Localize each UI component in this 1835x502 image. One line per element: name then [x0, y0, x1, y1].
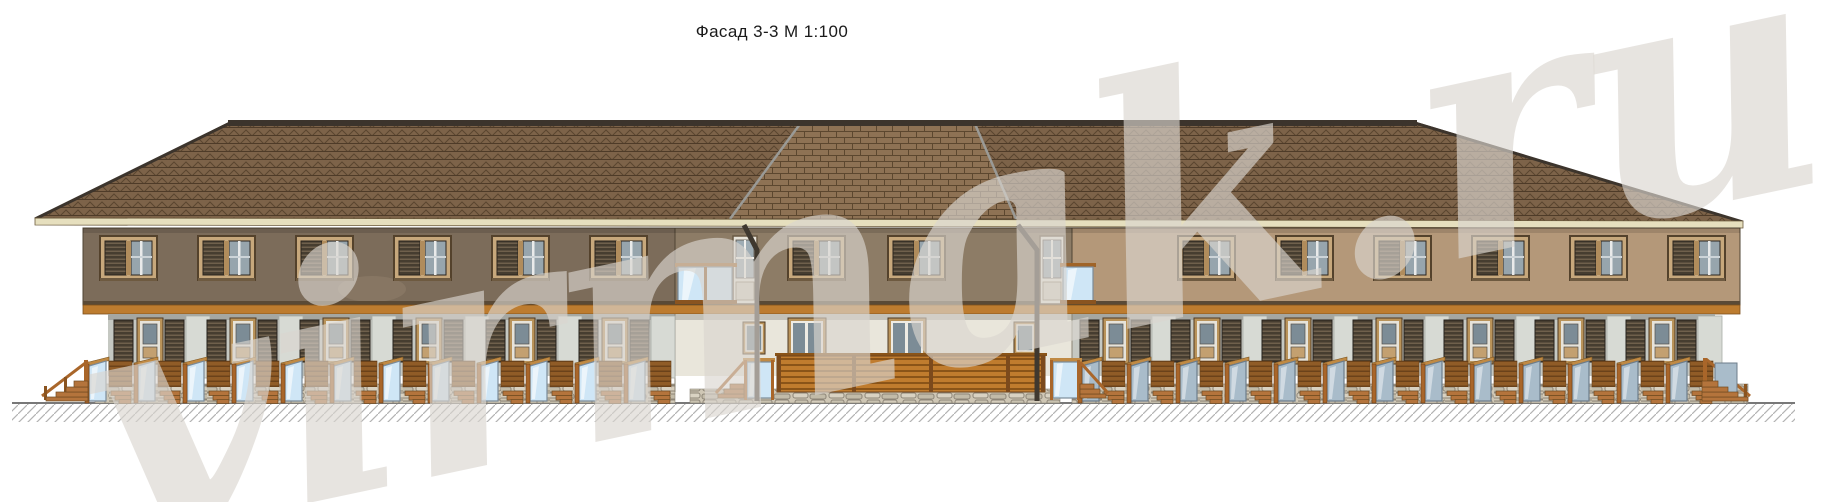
- window-2f: [1570, 236, 1627, 281]
- window-2f: [788, 236, 845, 281]
- window-2f: [394, 236, 451, 281]
- junction-balcony-right: [1050, 358, 1082, 400]
- ground-hatch: [12, 403, 1795, 422]
- facade-elevation-drawing: [0, 0, 1835, 502]
- window-1f: [888, 318, 926, 358]
- roof: [35, 122, 1743, 231]
- window-2f: [1178, 236, 1235, 281]
- end-stair-left: [42, 360, 88, 401]
- upper-balcony-right: [1060, 263, 1096, 304]
- second-floor-windows: [100, 236, 1725, 281]
- window-2f: [100, 236, 157, 281]
- window-1f: [743, 322, 765, 354]
- drawing-title: Фасад 3-3 М 1:100: [0, 22, 1544, 42]
- window-2f: [1472, 236, 1529, 281]
- junction-door: [1040, 236, 1064, 304]
- window-2f: [492, 236, 549, 281]
- window-2f: [590, 236, 647, 281]
- wood-fence: [775, 353, 1047, 392]
- window-2f: [1276, 236, 1333, 281]
- window-1f: [788, 318, 826, 358]
- window-1f: [1014, 322, 1036, 354]
- floor-band: [83, 305, 1740, 314]
- window-2f: [296, 236, 353, 281]
- upper-balcony-left: [675, 263, 737, 304]
- window-2f: [1668, 236, 1725, 281]
- window-2f: [888, 236, 945, 281]
- window-2f: [1374, 236, 1431, 281]
- window-2f: [198, 236, 255, 281]
- drawing-canvas: Фасад 3-3 М 1:100 virmak.ru: [0, 0, 1835, 502]
